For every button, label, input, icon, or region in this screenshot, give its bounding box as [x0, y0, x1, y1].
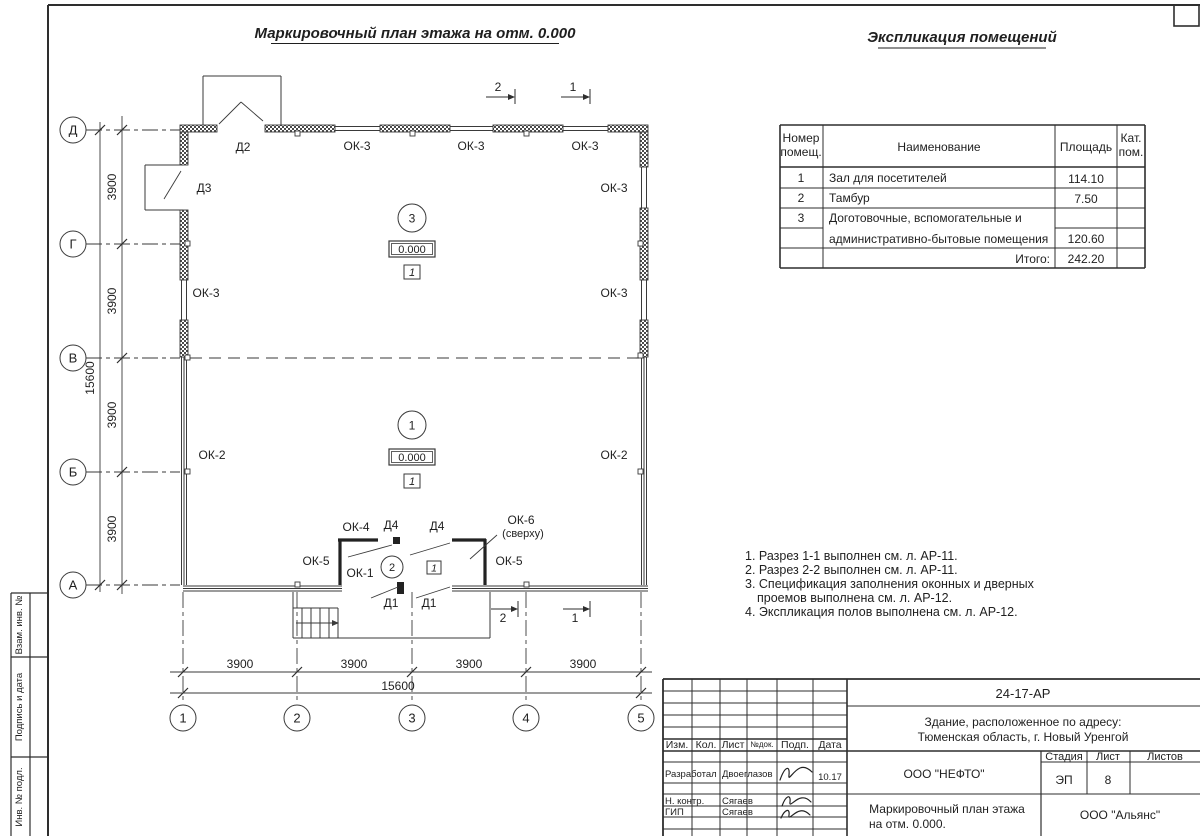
dimension-texts: 3900 3900 3900 3900 15600 3900 3900 3900… [83, 173, 597, 693]
stage-value: ЭП [1055, 773, 1072, 787]
dim-3900: 3900 [341, 657, 368, 671]
note-line: 2. Разрез 2-2 выполнен см. л. АР-11. [745, 563, 958, 577]
axis-letter: Д [69, 123, 78, 138]
dim-3900: 3900 [105, 515, 119, 542]
col-header-area: Площадь [1060, 140, 1112, 154]
section-label-2: 2 [495, 80, 502, 94]
window-label-ok3: ОК-3 [344, 139, 371, 153]
section-label-1: 1 [570, 80, 577, 94]
row-area: 7.50 [1074, 192, 1098, 206]
dim-15600: 15600 [381, 679, 415, 693]
axis-letter: Б [69, 465, 78, 480]
elevation-mark: 0.000 [398, 244, 426, 256]
col-header-num: Номер [783, 131, 820, 145]
dim-15600: 15600 [83, 361, 97, 395]
role-ncontrol: Н. контр. [665, 796, 704, 807]
section-marks: 2 1 2 1 [486, 80, 590, 625]
row-name-total: Итого: [1015, 252, 1050, 266]
col-ndoc: №док. [750, 740, 773, 749]
window-label-ok5: ОК-5 [496, 554, 523, 568]
room-number: 1 [409, 419, 416, 433]
col-list: Лист [722, 739, 745, 751]
axis-circles [60, 117, 654, 731]
org-name: ООО "Альянс" [1080, 808, 1160, 822]
door-label-d1: Д1 [384, 596, 399, 610]
col-data: Дата [818, 739, 841, 751]
window-label-ok3: ОК-3 [601, 181, 628, 195]
side-stamp-label-podpis: Подпись и дата [14, 672, 25, 741]
signatures [780, 767, 812, 818]
window-label-ok3: ОК-3 [458, 139, 485, 153]
side-stamp-label-vzam: Взам. инв. № [14, 596, 25, 655]
name-developed: Двоеглазов [722, 769, 773, 780]
name-gip: Сягаев [722, 807, 753, 818]
floor-type-mark: 1 [431, 563, 437, 575]
axis-number: 3 [408, 711, 415, 726]
signature-icon [780, 767, 812, 780]
door-d2-swing [219, 102, 263, 124]
corner-stamp-box [1174, 5, 1199, 26]
col-podp: Подп. [781, 739, 809, 751]
window-label-ok2: ОК-2 [601, 448, 628, 462]
dimension-ticks [95, 125, 646, 698]
note-line: 1. Разрез 1-1 выполнен см. л. АР-11. [745, 549, 958, 563]
door-post-bottom [397, 582, 404, 594]
note-line: 4. Экспликация полов выполнена см. л. АР… [745, 605, 1018, 619]
side-stamp-label-inv: Инв. № подл. [14, 767, 25, 826]
row-name: Тамбур [829, 191, 870, 205]
note-line: проемов выполнена см. л. АР-12. [757, 591, 952, 605]
axis-number: 4 [522, 711, 529, 726]
elevation-mark: 0.000 [398, 452, 426, 464]
axis-number: 5 [637, 711, 644, 726]
room-number: 2 [389, 562, 395, 574]
title-block-text: 24-17-АР Здание, расположенное по адресу… [665, 686, 1183, 831]
window-label-ok4: ОК-4 [343, 520, 370, 534]
window-label-ok6: ОК-6 [508, 513, 535, 527]
axis-letter: Г [69, 237, 76, 252]
door-post-top [393, 537, 400, 544]
opening-labels: Д2 Д3 ОК-3 ОК-3 ОК-3 ОК-3 ОК-3 ОК-3 ОК-2… [193, 139, 628, 610]
section-label-2: 2 [500, 611, 507, 625]
door-d4-swings [348, 543, 450, 557]
drawing-name: Маркировочный план этажа [869, 802, 1025, 816]
notes: 1. Разрез 1-1 выполнен см. л. АР-11. 2. … [745, 549, 1035, 619]
window-label-ok3: ОК-3 [193, 286, 220, 300]
section-label-1: 1 [572, 611, 579, 625]
col-header-cat: Кат. [1121, 131, 1142, 145]
window-label-ok1: ОК-1 [347, 566, 374, 580]
stage-label: Стадия [1045, 751, 1083, 763]
window-label-ok2: ОК-2 [199, 448, 226, 462]
floor-type-mark: 1 [409, 267, 415, 279]
drawing-sheet: Взам. инв. № Подпись и дата Инв. № подл.… [0, 0, 1200, 836]
windows [182, 127, 649, 592]
row-area: 114.10 [1068, 172, 1104, 186]
row-area-total: 242.20 [1068, 252, 1105, 266]
door-label-d2: Д2 [236, 140, 251, 154]
sheet-label: Лист [1096, 751, 1120, 763]
row-num: 2 [798, 191, 805, 205]
axis-number: 2 [293, 711, 300, 726]
explication-title: Экспликация помещений [867, 29, 1057, 46]
name-ncontrol: Сягаев [722, 796, 753, 807]
door-d3 [145, 165, 183, 210]
porch-top [203, 76, 281, 125]
window-label-ok6-note: (сверху) [502, 528, 544, 540]
dim-3900: 3900 [227, 657, 254, 671]
signature-icon [782, 797, 811, 806]
object-address: Здание, расположенное по адресу: [924, 715, 1121, 729]
explication-table-text: Номер помещ. Наименование Площадь Кат. п… [780, 131, 1143, 266]
row-num: 3 [798, 211, 805, 225]
dim-3900: 3900 [105, 173, 119, 200]
row-num: 1 [798, 171, 805, 185]
window-label-ok3: ОК-3 [601, 286, 628, 300]
room-number: 3 [409, 212, 416, 226]
role-developed: Разработал [665, 769, 717, 780]
dim-3900: 3900 [570, 657, 597, 671]
door-label-d1: Д1 [422, 596, 437, 610]
row-name: Доготовочные, вспомогательные и [829, 211, 1022, 225]
window-label-ok3: ОК-3 [572, 139, 599, 153]
axis-circle-labels: Д Г В Б А 1 2 3 4 5 [69, 123, 645, 726]
dim-3900: 3900 [105, 401, 119, 428]
window-label-ok5: ОК-5 [303, 554, 330, 568]
drawing-name: на отм. 0.000. [869, 817, 946, 831]
doc-number: 24-17-АР [996, 686, 1051, 701]
company-name: ООО "НЕФТО" [903, 767, 984, 781]
row-name: Зал для посетителей [829, 171, 947, 185]
sheets-label: Листов [1147, 751, 1183, 763]
note-line: 3. Спецификация заполнения оконных и две… [745, 577, 1035, 591]
object-address: Тюменская область, г. Новый Уренгой [918, 730, 1129, 744]
sheet-value: 8 [1105, 773, 1112, 787]
row-area: 120.60 [1068, 232, 1105, 246]
door-label-d4: Д4 [430, 519, 445, 533]
axis-letter: А [69, 578, 78, 593]
axis-wall-ticks [185, 131, 643, 587]
col-kol: Кол. [696, 739, 717, 751]
row-name: административно-бытовые помещения [829, 232, 1048, 246]
date-developed: 10.17 [818, 772, 842, 783]
drawing-canvas: Взам. инв. № Подпись и дата Инв. № подл.… [0, 0, 1200, 836]
col-header-name: Наименование [897, 140, 981, 154]
col-header-cat: пом. [1119, 145, 1144, 159]
door-label-d4: Д4 [384, 518, 399, 532]
plan-title: Маркировочный план этажа на отм. 0.000 [255, 25, 577, 42]
floor-type-mark: 1 [409, 476, 415, 488]
role-gip: ГИП [665, 807, 684, 818]
col-izm: Изм. [666, 739, 689, 751]
axis-number: 1 [179, 711, 186, 726]
door-label-d3: Д3 [197, 181, 212, 195]
axis-lines [86, 130, 641, 704]
col-header-num: помещ. [780, 145, 821, 159]
dim-3900: 3900 [105, 287, 119, 314]
axis-letter: В [69, 351, 78, 366]
dim-3900: 3900 [456, 657, 483, 671]
